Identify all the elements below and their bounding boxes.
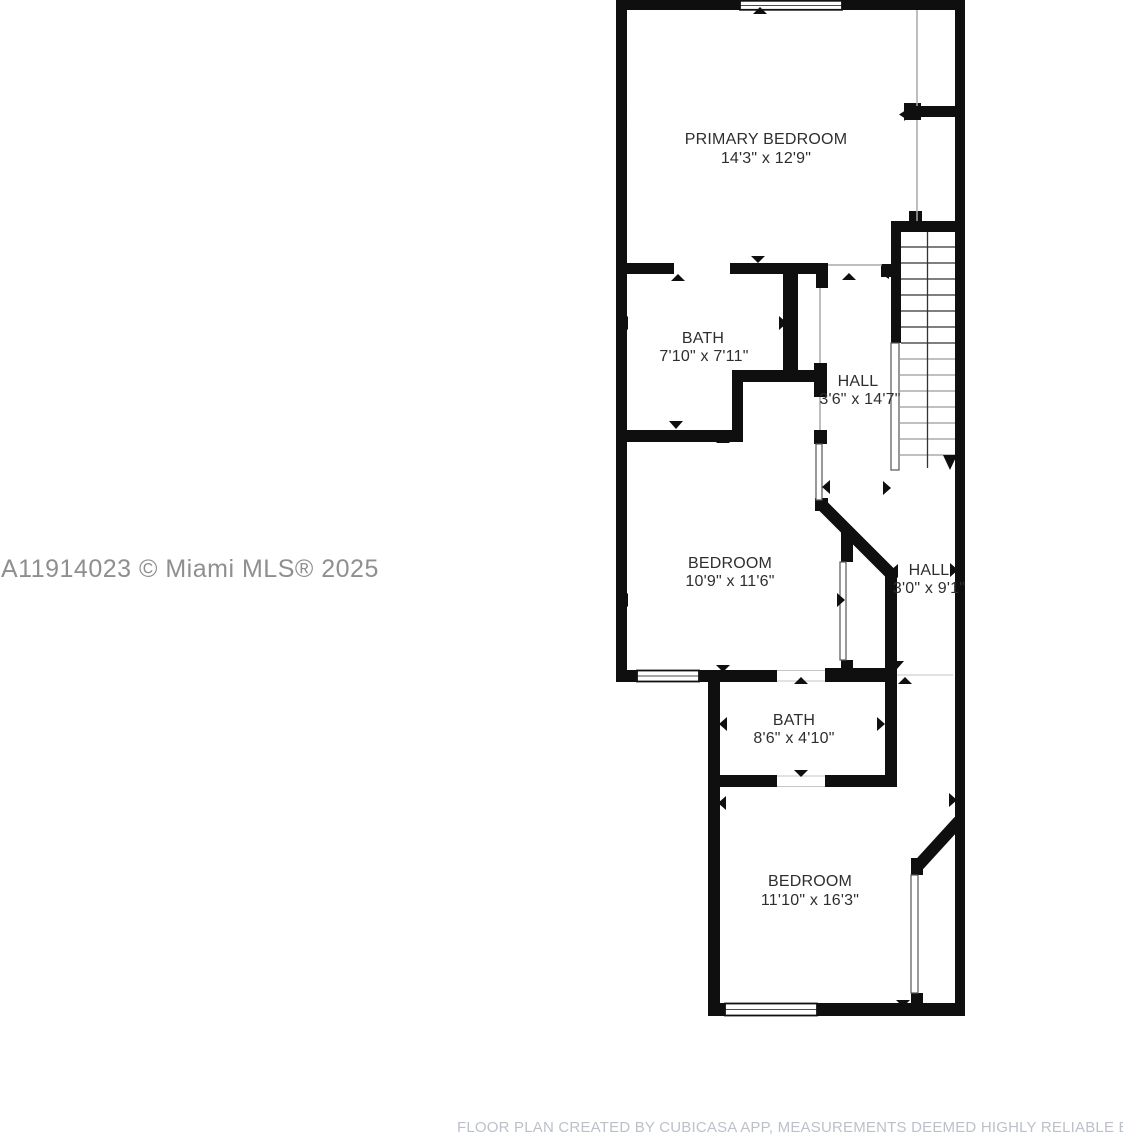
room-label-bath-lower: BATH: [773, 712, 815, 729]
wall: [885, 668, 897, 787]
opening-panel: [816, 444, 822, 500]
footer-disclaimer: FLOOR PLAN CREATED BY CUBICASA APP, MEAS…: [457, 1119, 1123, 1136]
dimension-arrow-icon: [883, 481, 891, 495]
wall: [955, 0, 965, 1016]
room-dimensions-bath-lower: 8'6" x 4'10": [753, 730, 834, 747]
room-dimensions-hall-lower: 3'0" x 9'1": [893, 580, 965, 597]
dimension-arrow-icon: [822, 480, 830, 494]
closet-front-panel: [840, 562, 846, 660]
dimension-arrow-icon: [671, 274, 685, 281]
wall: [906, 106, 955, 117]
wall: [730, 263, 828, 274]
dimension-arrow-icon: [877, 717, 885, 731]
wall: [616, 263, 674, 274]
room-label-bath-upper: BATH: [682, 330, 724, 347]
dimension-arrow-icon: [898, 677, 912, 684]
room-label-bedroom-lower: BEDROOM: [768, 873, 852, 890]
room-dimensions-bedroom-middle: 10'9" x 11'6": [685, 573, 774, 590]
room-labels: PRIMARY BEDROOM 14'3" x 12'9" BATH 7'10"…: [659, 131, 965, 909]
room-label-primary-bedroom: PRIMARY BEDROOM: [685, 131, 847, 148]
dimension-arrow-icon: [842, 273, 856, 280]
wall: [616, 430, 732, 442]
door-hinge-icon: [899, 110, 906, 119]
wall: [732, 370, 827, 382]
partition-panel: [911, 875, 918, 993]
room-dimensions-primary-bedroom: 14'3" x 12'9": [721, 150, 811, 167]
wall: [708, 670, 720, 1016]
room-label-hall-lower: HALL: [909, 562, 950, 579]
wall: [616, 0, 627, 680]
room-dimensions-bedroom-lower: 11'10" x 16'3": [761, 892, 859, 909]
dimension-arrow-icon: [719, 717, 727, 731]
wall: [708, 775, 777, 787]
dimension-arrow-icon: [751, 256, 765, 263]
wall: [732, 370, 743, 442]
wall: [814, 430, 827, 444]
window: [725, 1004, 817, 1016]
stairs-down-arrow-icon: [943, 455, 957, 470]
dimension-arrow-icon: [669, 421, 683, 429]
room-dimensions-hall-upper: 3'6" x 14'7": [819, 391, 900, 408]
floor-plan-canvas: A11914023 © Miami MLS® 2025: [0, 0, 1123, 1130]
room-label-hall-upper: HALL: [838, 373, 879, 390]
wall: [909, 211, 922, 221]
wall: [816, 263, 828, 288]
diagonal-wall: [821, 504, 890, 573]
window: [740, 1, 842, 10]
floor-plan-drawing: PRIMARY BEDROOM 14'3" x 12'9" BATH 7'10"…: [0, 0, 1123, 1130]
diagonal-wall: [917, 821, 959, 867]
wall: [911, 993, 923, 1016]
room-dimensions-bath-upper: 7'10" x 7'11": [659, 348, 748, 365]
wall: [891, 221, 901, 343]
room-label-bedroom-middle: BEDROOM: [688, 555, 772, 572]
window: [637, 671, 699, 682]
